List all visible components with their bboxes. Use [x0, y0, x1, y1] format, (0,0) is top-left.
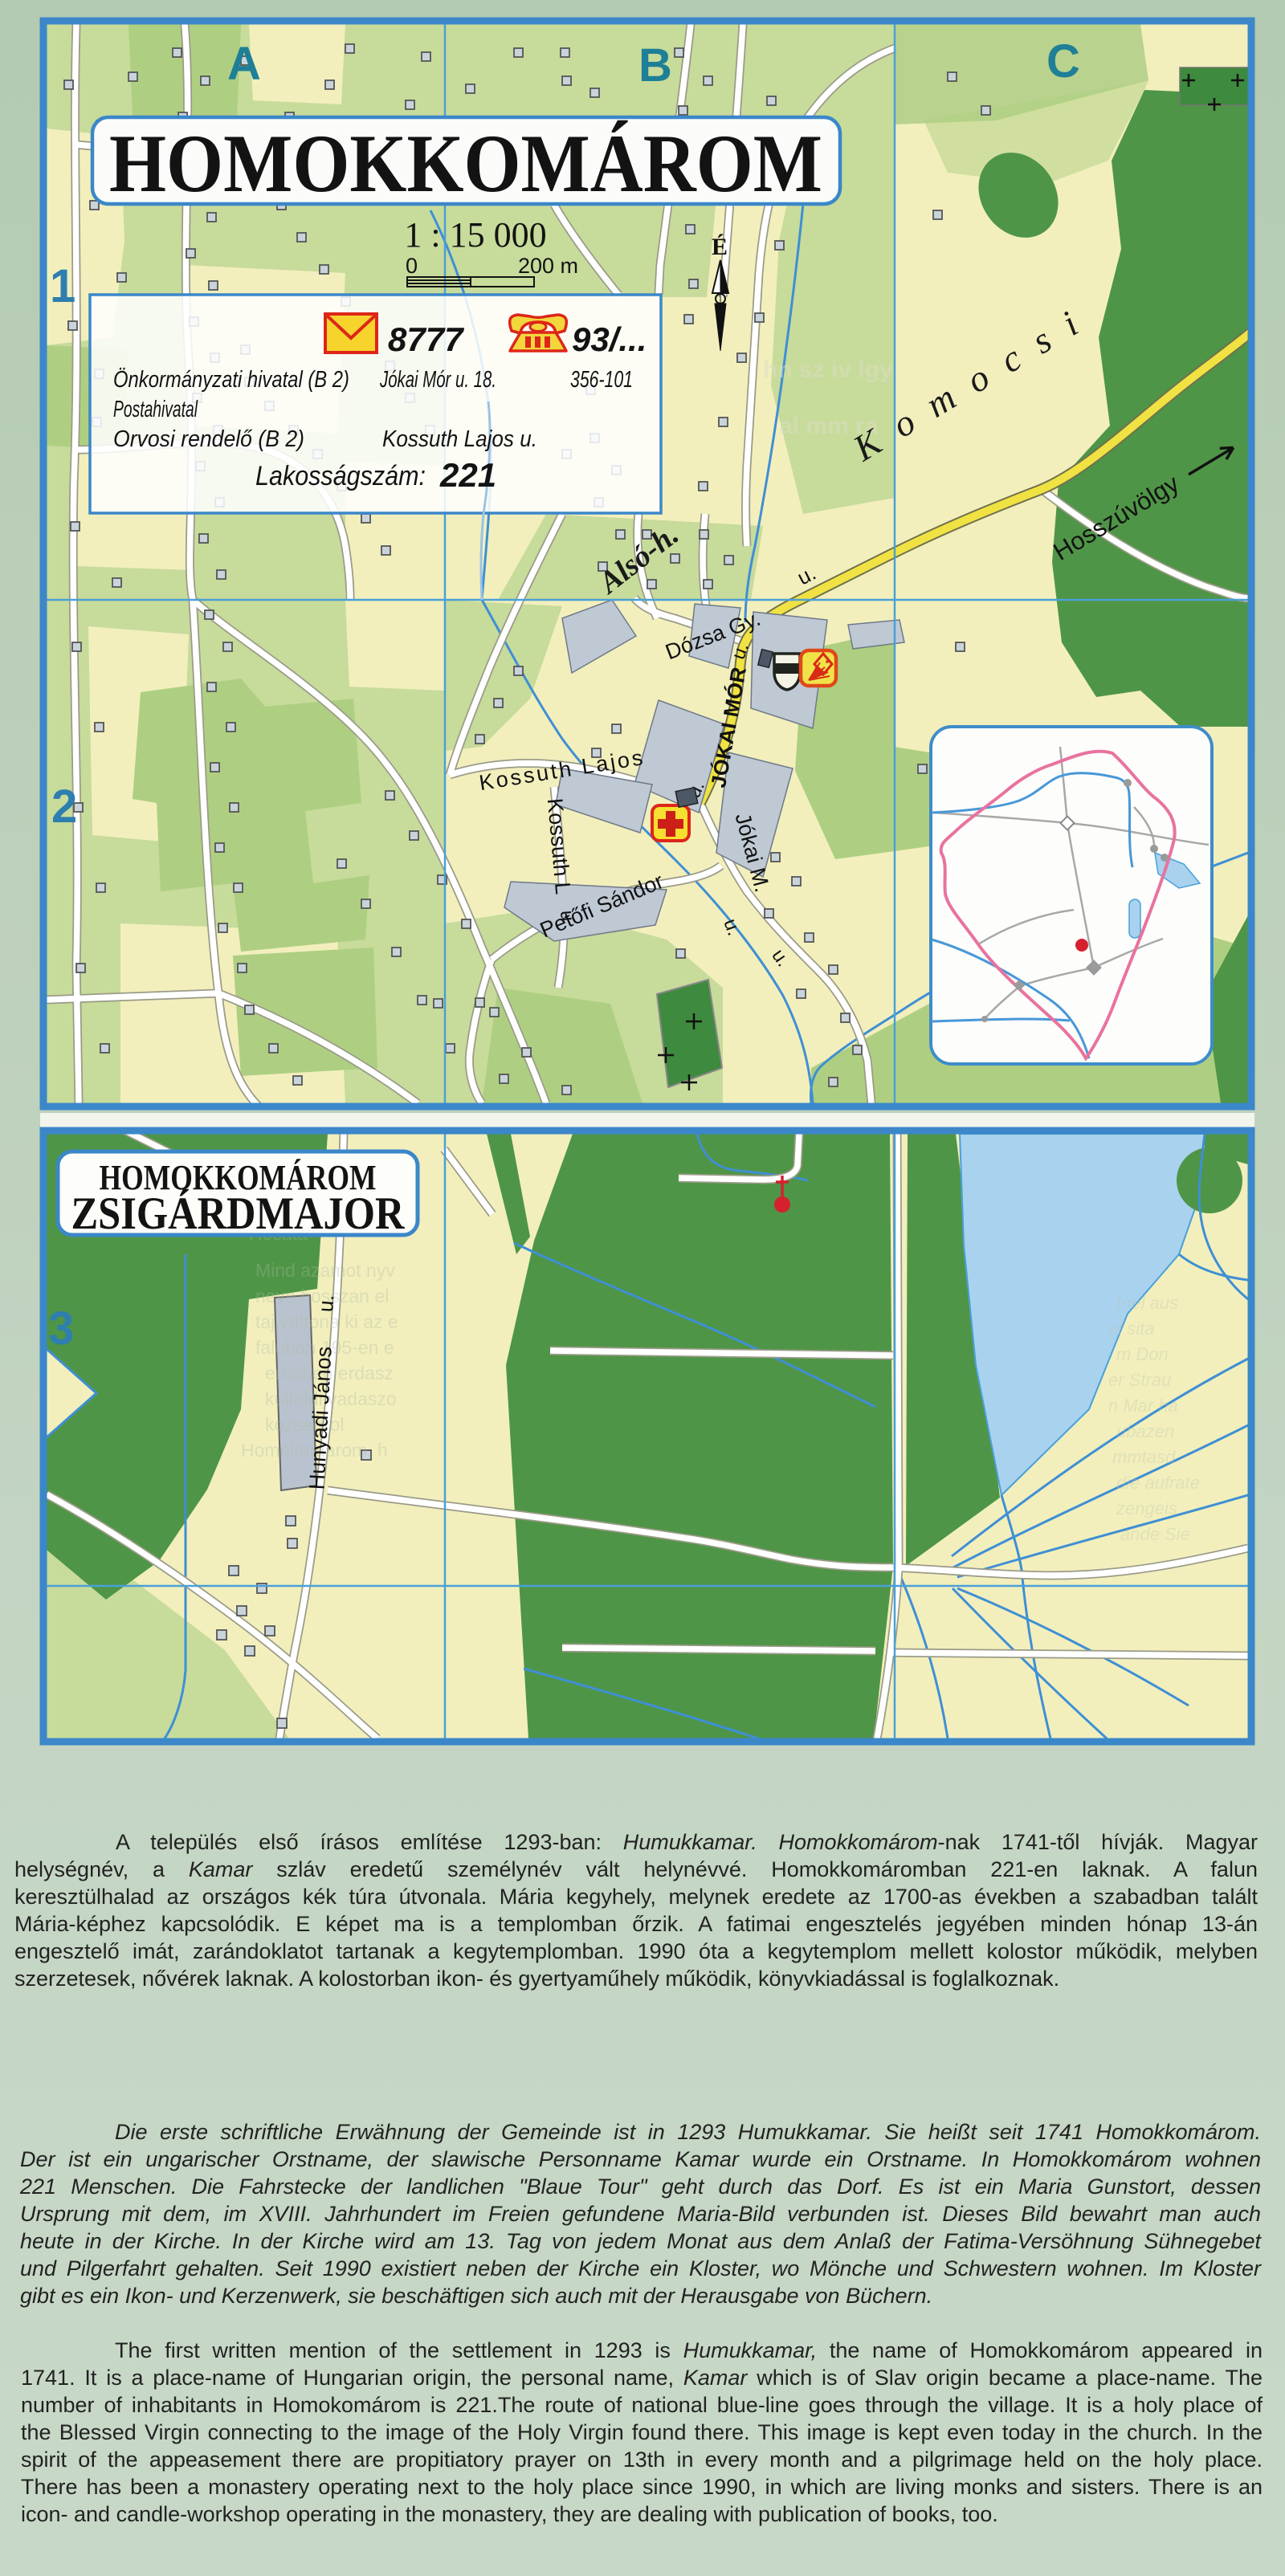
- svg-text:Önkormányzati hivatal (B 2): Önkormányzati hivatal (B 2): [113, 367, 349, 393]
- svg-text:zengeis: zengeis: [1116, 1498, 1177, 1518]
- svg-text:Orvosi rendelő (B 2): Orvosi rendelő (B 2): [113, 426, 304, 452]
- svg-text:el sita: el sita: [1108, 1319, 1154, 1339]
- svg-text:C: C: [1046, 35, 1080, 88]
- svg-text:ZSIGÁRDMAJOR: ZSIGÁRDMAJOR: [71, 1188, 406, 1239]
- svg-text:É: É: [712, 234, 728, 260]
- svg-text:mmtasd: mmtasd: [1112, 1447, 1176, 1467]
- svg-text:Postahivatal: Postahivatal: [113, 397, 198, 422]
- svg-text:B: B: [638, 39, 672, 92]
- svg-text:ubazen: ubazen: [1116, 1421, 1174, 1441]
- svg-text:356-101: 356-101: [570, 367, 633, 393]
- svg-text:1 : 15 000: 1 : 15 000: [404, 215, 546, 255]
- svg-text:A: A: [227, 38, 261, 90]
- svg-text:Lakosságszám:: Lakosságszám:: [255, 461, 426, 491]
- svg-text:Jókai Mór u. 18.: Jókai Mór u. 18.: [379, 367, 496, 393]
- svg-text:HOMOKKOMÁROM: HOMOKKOMÁROM: [109, 118, 822, 210]
- svg-text:n Mar ha: n Mar ha: [1108, 1396, 1178, 1416]
- svg-text:8777: 8777: [388, 320, 464, 358]
- svg-text:tnel aus: tnel aus: [1116, 1293, 1178, 1313]
- svg-text:er Strau: er Strau: [1108, 1370, 1171, 1390]
- svg-text:2: 2: [51, 781, 77, 833]
- svg-text:200 m: 200 m: [518, 254, 578, 278]
- svg-text:ande Sie: ande Sie: [1120, 1524, 1190, 1544]
- svg-text:hn sz iv lgy: hn sz iv lgy: [763, 357, 893, 383]
- svg-text:Mind azamot nyv: Mind azamot nyv: [255, 1260, 395, 1281]
- svg-text:93/...: 93/...: [572, 320, 647, 358]
- svg-text:0: 0: [406, 254, 418, 278]
- svg-text:m Don: m Don: [1116, 1344, 1169, 1364]
- svg-text:Kossuth Lajos u.: Kossuth Lajos u.: [382, 426, 537, 452]
- svg-text:1: 1: [50, 260, 75, 312]
- svg-text:u.: u.: [313, 1294, 338, 1313]
- svg-text:die aufrate: die aufrate: [1116, 1473, 1200, 1493]
- svg-text:3: 3: [48, 1302, 74, 1355]
- svg-text:221: 221: [439, 456, 496, 494]
- svg-text:taj valtona ki az e: taj valtona ki az e: [255, 1311, 398, 1332]
